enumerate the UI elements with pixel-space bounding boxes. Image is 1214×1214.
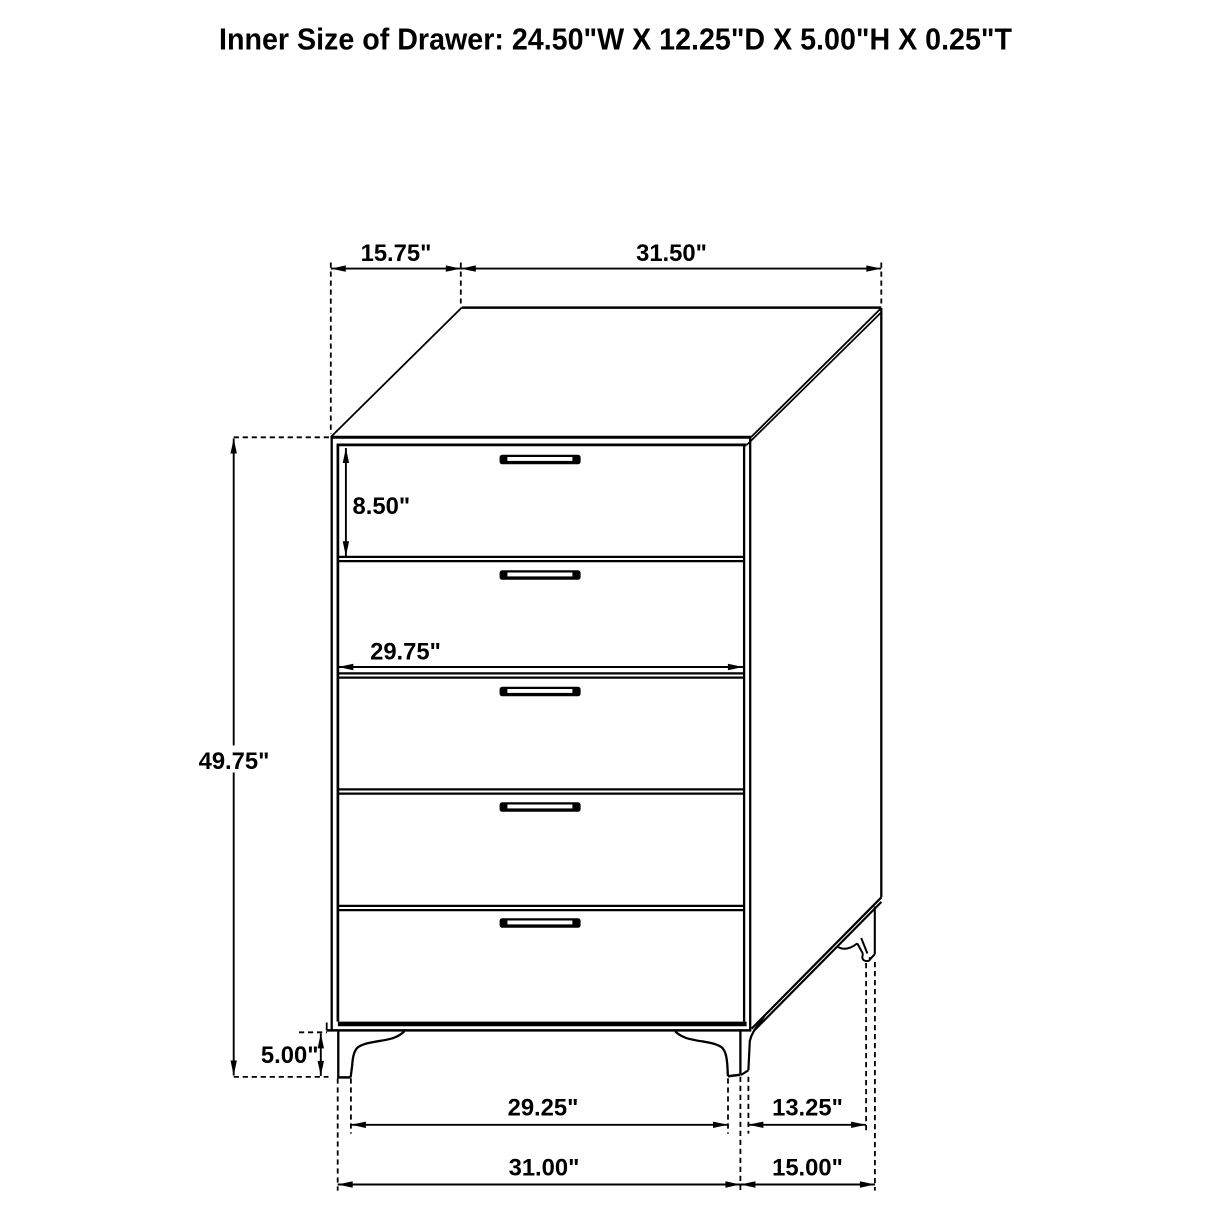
- svg-text:8.50": 8.50": [353, 493, 411, 520]
- svg-text:29.25": 29.25": [508, 1095, 579, 1122]
- svg-text:5.00": 5.00": [261, 1042, 319, 1069]
- svg-text:15.00": 15.00": [772, 1154, 843, 1181]
- svg-text:49.75": 49.75": [199, 748, 270, 775]
- svg-text:15.75": 15.75": [361, 240, 432, 267]
- svg-text:Inner Size of Drawer: 24.50"W: Inner Size of Drawer: 24.50"W X 12.25"D …: [219, 22, 1012, 57]
- svg-text:13.25": 13.25": [772, 1095, 843, 1122]
- svg-text:31.00": 31.00": [509, 1154, 580, 1181]
- svg-text:29.75": 29.75": [370, 638, 441, 665]
- svg-text:31.50": 31.50": [636, 240, 707, 267]
